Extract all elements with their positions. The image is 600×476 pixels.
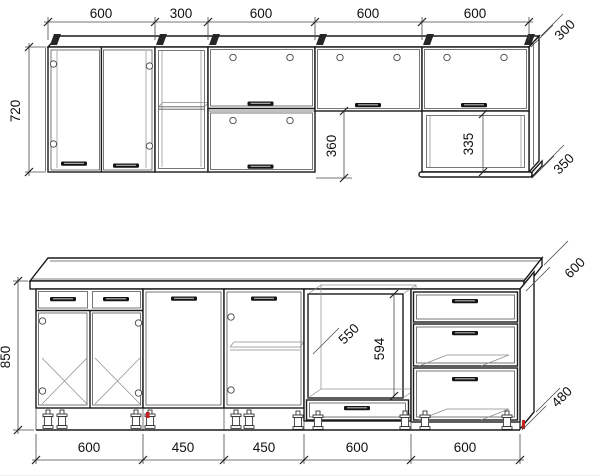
oven-height-label: 594: [372, 337, 387, 360]
cabinet-technical-drawing: 600 300 600 600 600 720 300 350 360 335: [0, 0, 600, 476]
wall-depth-label: 300: [552, 17, 579, 44]
drawer-handle: [50, 297, 76, 301]
base-depth-label: 480: [549, 384, 576, 411]
door-handle: [171, 297, 197, 301]
wall-gap-label: 360: [324, 135, 339, 158]
base-side-panel-right: [520, 272, 534, 429]
worktop: [30, 258, 542, 289]
base-width-label-4: 600: [346, 440, 369, 455]
flap-handle: [355, 103, 381, 107]
base-cabinet-3-door: [224, 289, 304, 408]
wall-height-label: 720: [8, 100, 23, 123]
wall-top-face: [48, 36, 539, 47]
niche-bottom-shelf: [419, 172, 532, 177]
wall-cabinet-2-open-shelf: [155, 47, 209, 172]
drawer-handle: [452, 377, 478, 381]
flap-handle: [461, 103, 487, 107]
flap-handle: [248, 165, 274, 169]
wall-cabinet-4-flap-door: [315, 47, 422, 111]
base-cabinet-2-tall-front: [143, 289, 224, 408]
wall-width-label-2: 300: [170, 6, 193, 21]
wall-side-panel-right: [529, 36, 539, 172]
drawer-handle: [344, 406, 370, 410]
base-cabinet-5-drawers: [411, 289, 520, 422]
red-fitting-mark-1: [146, 412, 150, 418]
base-cabinet-4-oven-housing: [304, 285, 416, 421]
wall-width-label-5: 600: [464, 6, 487, 21]
base-width-label-3: 450: [253, 440, 276, 455]
base-width-label-2: 450: [172, 440, 195, 455]
wall-width-label-1: 600: [90, 6, 113, 21]
drawing-canvas: 600 300 600 600 600 720 300 350 360 335: [0, 0, 600, 475]
wall-cabinet-1-double-door: [46, 47, 156, 172]
drawer-handle: [103, 297, 129, 301]
base-width-label-1: 600: [78, 440, 101, 455]
door-handle: [113, 164, 139, 168]
drawer-handle: [452, 299, 478, 303]
wall-width-label-4: 600: [357, 6, 380, 21]
base-height-label: 850: [0, 346, 13, 369]
drawer-handle: [452, 331, 478, 335]
base-cabinet-row: [30, 258, 542, 430]
wall-shelf-height-label: 335: [461, 133, 476, 156]
base-width-label-5: 600: [454, 440, 477, 455]
door-handle: [61, 162, 87, 166]
base-cabinet-1-doors-drawers: [36, 289, 143, 408]
door-handle: [251, 297, 277, 301]
flap-handle: [248, 102, 274, 106]
wall-width-label-3: 600: [250, 6, 273, 21]
wall-cabinet-5-flap-and-niche: [419, 47, 542, 177]
wall-cabinet-3-flap-doors: [208, 47, 315, 172]
worktop-depth-label: 600: [562, 255, 589, 282]
